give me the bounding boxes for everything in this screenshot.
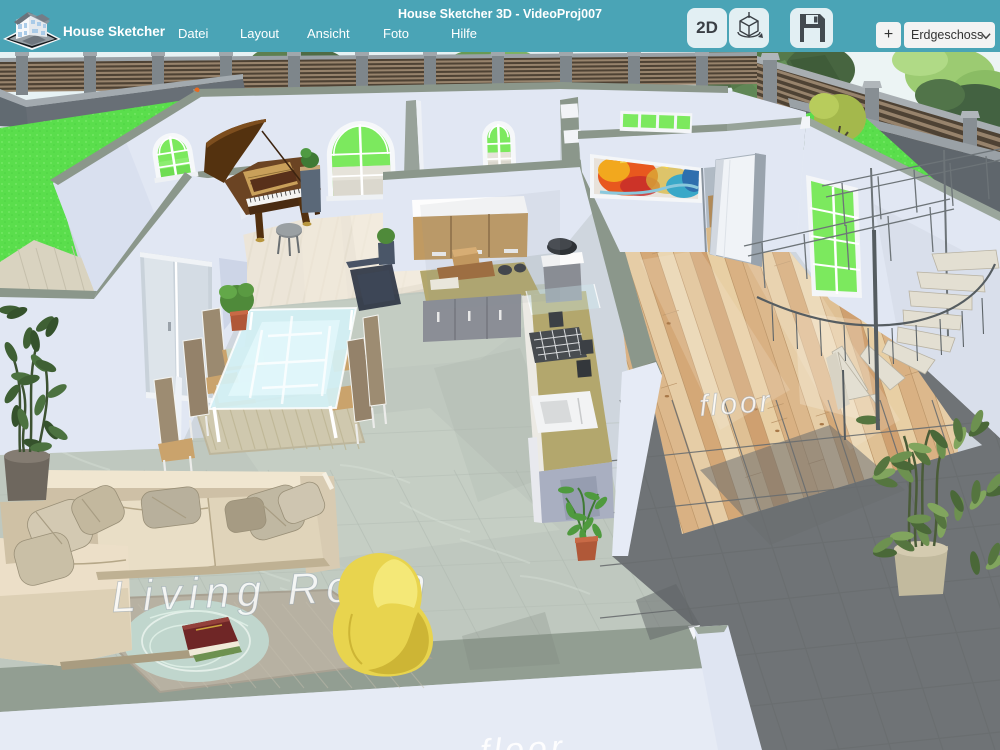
svg-text:floor: floor: [698, 385, 773, 423]
svg-text:floor: floor: [479, 729, 567, 750]
